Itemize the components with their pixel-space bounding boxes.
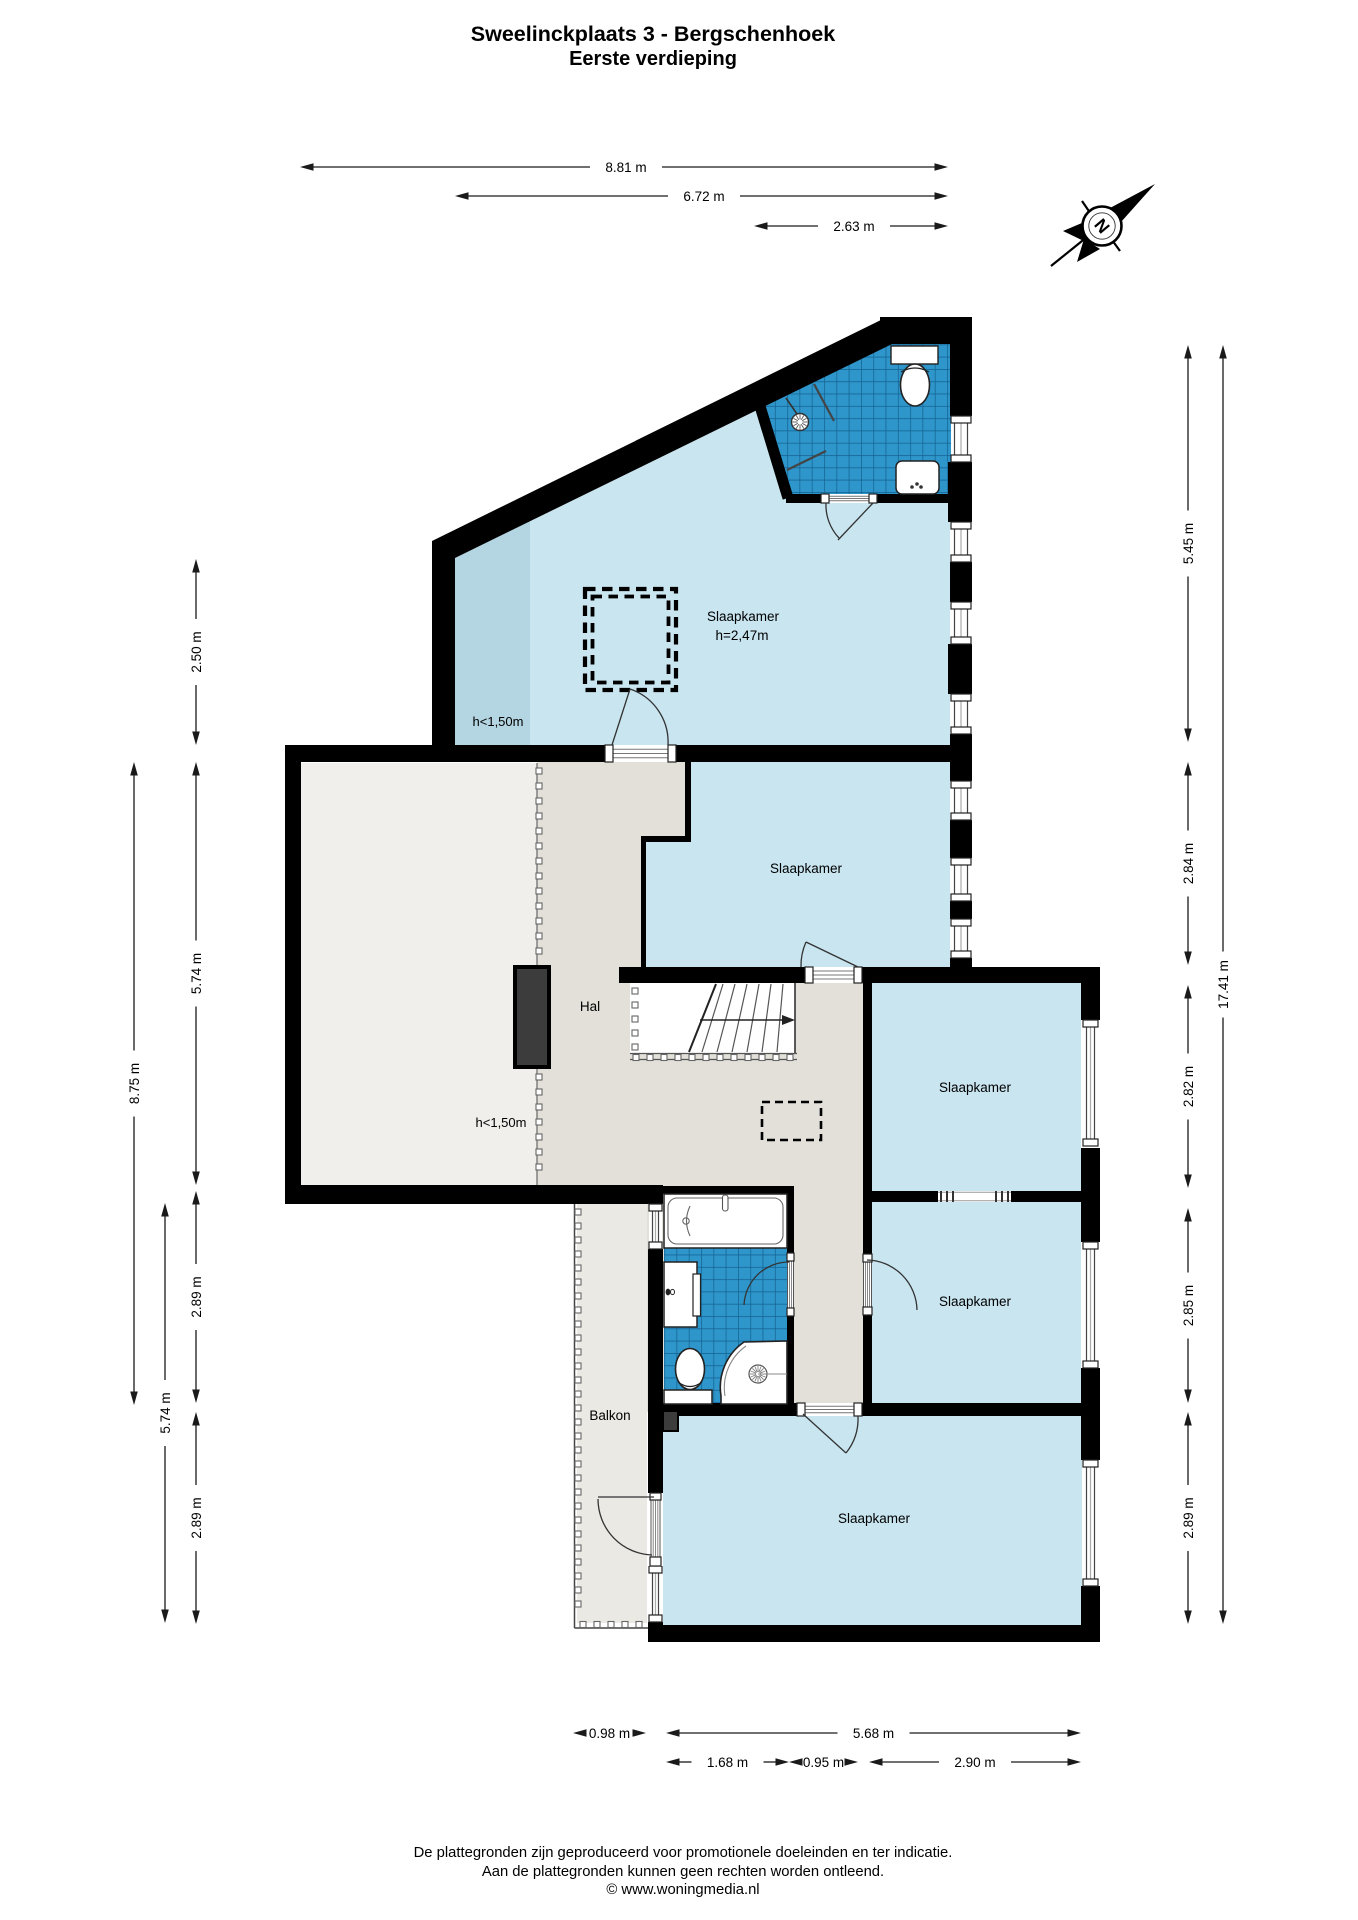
svg-text:h<1,50m: h<1,50m bbox=[476, 1115, 527, 1130]
svg-text:Slaapkamer: Slaapkamer bbox=[707, 609, 780, 624]
svg-text:5.74 m: 5.74 m bbox=[189, 953, 204, 994]
svg-text:8.75 m: 8.75 m bbox=[127, 1063, 142, 1104]
svg-text:2.89 m: 2.89 m bbox=[189, 1276, 204, 1317]
svg-text:Aan de plattegronden kunnen ge: Aan de plattegronden kunnen geen rechten… bbox=[482, 1864, 884, 1880]
svg-text:Slaapkamer: Slaapkamer bbox=[838, 1511, 911, 1526]
svg-text:5.45 m: 5.45 m bbox=[1181, 523, 1196, 564]
svg-text:2.89 m: 2.89 m bbox=[1181, 1497, 1196, 1538]
svg-text:2.63 m: 2.63 m bbox=[833, 219, 874, 234]
svg-text:Slaapkamer: Slaapkamer bbox=[770, 861, 843, 876]
svg-text:Hal: Hal bbox=[580, 999, 600, 1014]
svg-text:2.89 m: 2.89 m bbox=[189, 1497, 204, 1538]
svg-text:2.90 m: 2.90 m bbox=[954, 1755, 995, 1770]
svg-text:Sweelinckplaats 3 - Bergschenh: Sweelinckplaats 3 - Bergschenhoek bbox=[471, 22, 835, 46]
svg-text:0.98 m: 0.98 m bbox=[589, 1726, 630, 1741]
svg-text:h<1,50m: h<1,50m bbox=[473, 714, 524, 729]
svg-text:2.84 m: 2.84 m bbox=[1181, 843, 1196, 884]
svg-text:De plattegronden zijn geproduc: De plattegronden zijn geproduceerd voor … bbox=[414, 1845, 953, 1861]
svg-text:© www.woningmedia.nl: © www.woningmedia.nl bbox=[606, 1882, 759, 1898]
svg-text:Slaapkamer: Slaapkamer bbox=[939, 1080, 1012, 1095]
svg-text:2.85 m: 2.85 m bbox=[1181, 1285, 1196, 1326]
svg-text:5.68 m: 5.68 m bbox=[853, 1726, 894, 1741]
svg-text:8.81 m: 8.81 m bbox=[605, 160, 646, 175]
svg-text:5.74 m: 5.74 m bbox=[158, 1392, 173, 1433]
svg-text:Balkon: Balkon bbox=[589, 1408, 630, 1423]
svg-text:17.41 m: 17.41 m bbox=[1216, 960, 1231, 1009]
svg-text:6.72 m: 6.72 m bbox=[683, 189, 724, 204]
svg-text:Slaapkamer: Slaapkamer bbox=[939, 1294, 1012, 1309]
svg-text:h=2,47m: h=2,47m bbox=[716, 628, 769, 643]
svg-text:2.82 m: 2.82 m bbox=[1181, 1066, 1196, 1107]
svg-text:1.68 m: 1.68 m bbox=[707, 1755, 748, 1770]
svg-text:Eerste verdieping: Eerste verdieping bbox=[569, 48, 737, 70]
svg-text:0.95 m: 0.95 m bbox=[803, 1755, 844, 1770]
svg-text:2.50 m: 2.50 m bbox=[189, 631, 204, 672]
